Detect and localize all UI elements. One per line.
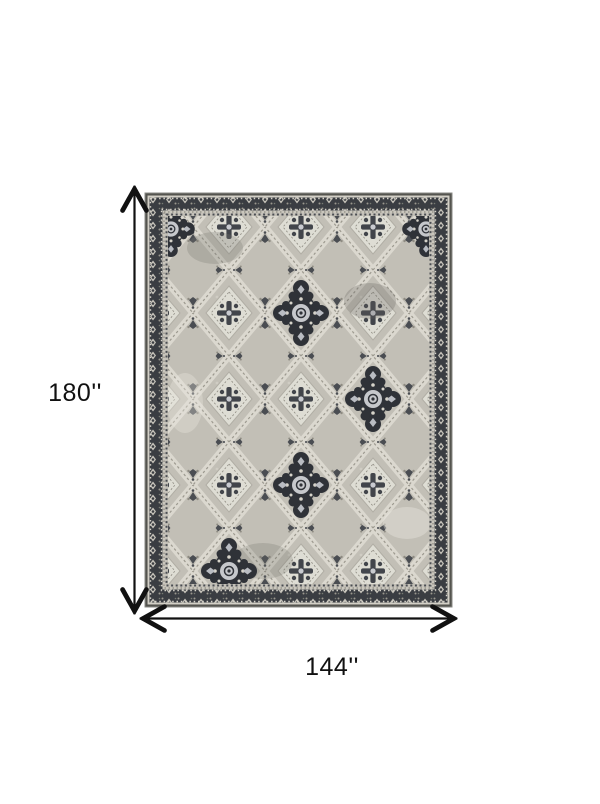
rug-image <box>145 193 452 607</box>
product-dimension-image: 180'' 144'' <box>0 0 600 804</box>
height-dimension-label: 180'' <box>15 378 135 408</box>
width-dimension-label: 144'' <box>272 652 392 682</box>
